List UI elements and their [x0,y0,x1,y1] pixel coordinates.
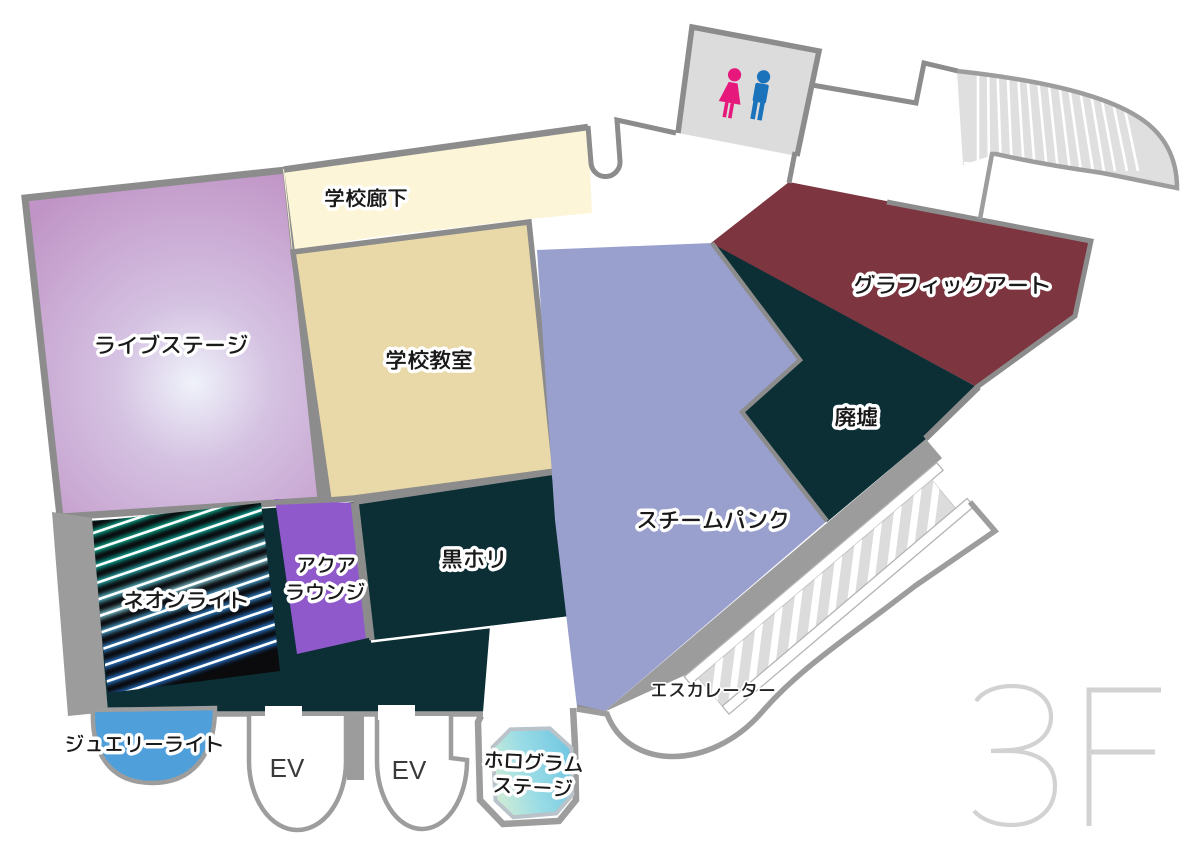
svg-text:EV: EV [270,753,305,783]
svg-text:EV: EV [392,755,427,785]
